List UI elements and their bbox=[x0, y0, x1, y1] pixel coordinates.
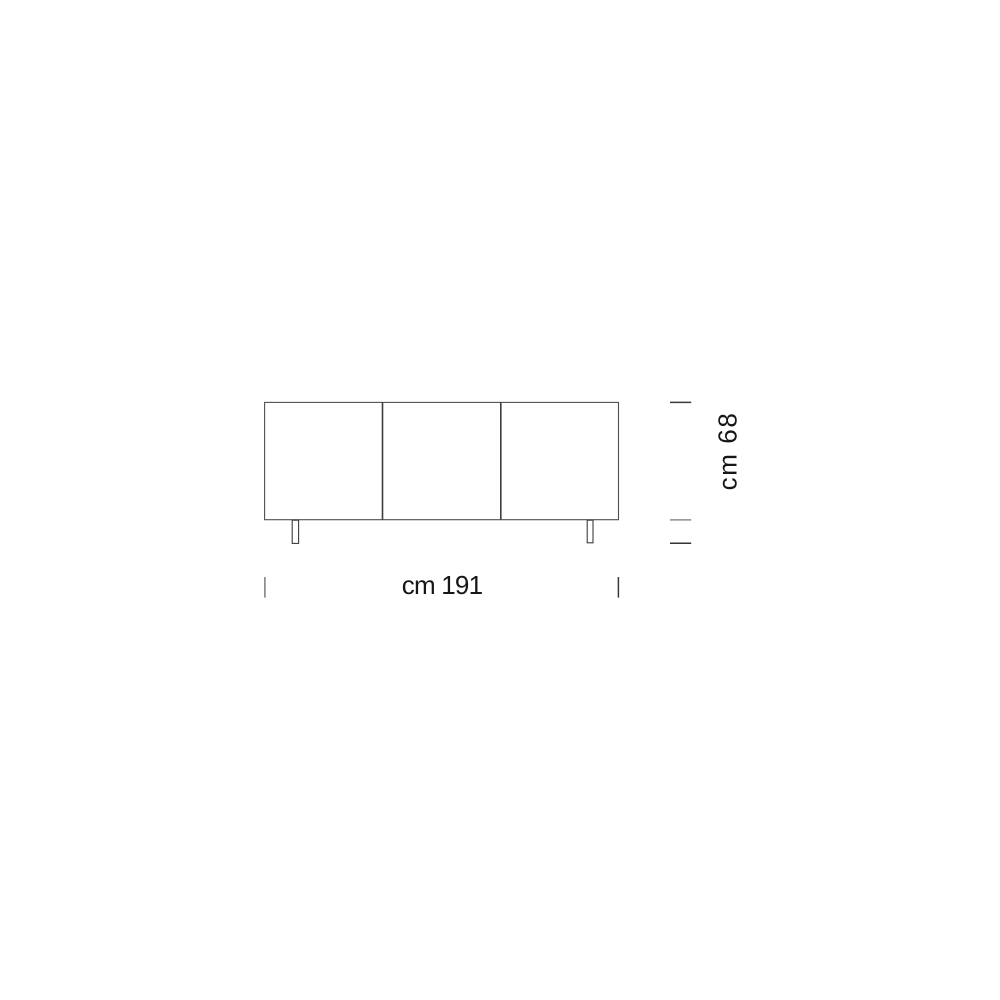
svg-text:cm 68: cm 68 bbox=[713, 412, 743, 491]
svg-text:cm 191: cm 191 bbox=[402, 570, 483, 600]
